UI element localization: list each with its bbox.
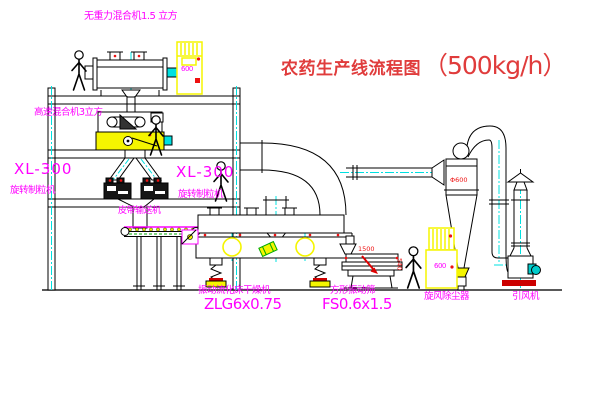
label-belt-conveyor: 皮带输送机 [118,207,161,216]
person-top-floor [72,51,86,90]
fan-and-stack [502,169,541,286]
granulators [104,178,168,199]
label-high-speed-mixer: 高速混合机3立方 [34,108,103,118]
cad-flow-diagram: 农药生产线流程图 （500kg/h） 无重力混合机1.5 立方 高速混合机3立方… [0,0,600,403]
diagram-title: 农药生产线流程图 （500kg/h） [281,46,566,82]
y-chute [109,150,161,180]
dim-cyclone-diameter: Φ600 [450,177,468,184]
label-granulator-mid: 旋转制粒机 [178,190,223,200]
label-xl300-left: XL-300 [14,162,72,177]
label-fan: 引风机 [512,292,539,302]
dim-sieve-length: 1500 [358,246,375,253]
label-xl300-mid: XL-300 [176,165,234,180]
fluid-bed-dryer [182,208,352,287]
dim-sieve-height: 540 [396,258,403,270]
label-cabinet-1: 600 [181,66,193,73]
label-cyclone: 旋风除尘器 [424,292,469,302]
square-sieve [340,236,402,288]
title-text: 农药生产线流程图 [281,54,421,79]
gravity-free-mixer [85,52,179,112]
label-sieve-model: FS0.6x1.5 [322,297,392,312]
person-ground [406,247,421,288]
label-granulator-left: 旋转制粒机 [10,186,55,196]
elbow-duct [240,140,346,215]
title-capacity: （500kg/h） [423,46,566,82]
control-cabinet-2 [426,228,457,288]
label-gravity-mixer: 无重力混合机1.5 立方 [84,12,177,22]
label-cabinet-2: 600 [434,263,446,270]
label-dryer-model: ZLG6x0.75 [204,297,282,312]
